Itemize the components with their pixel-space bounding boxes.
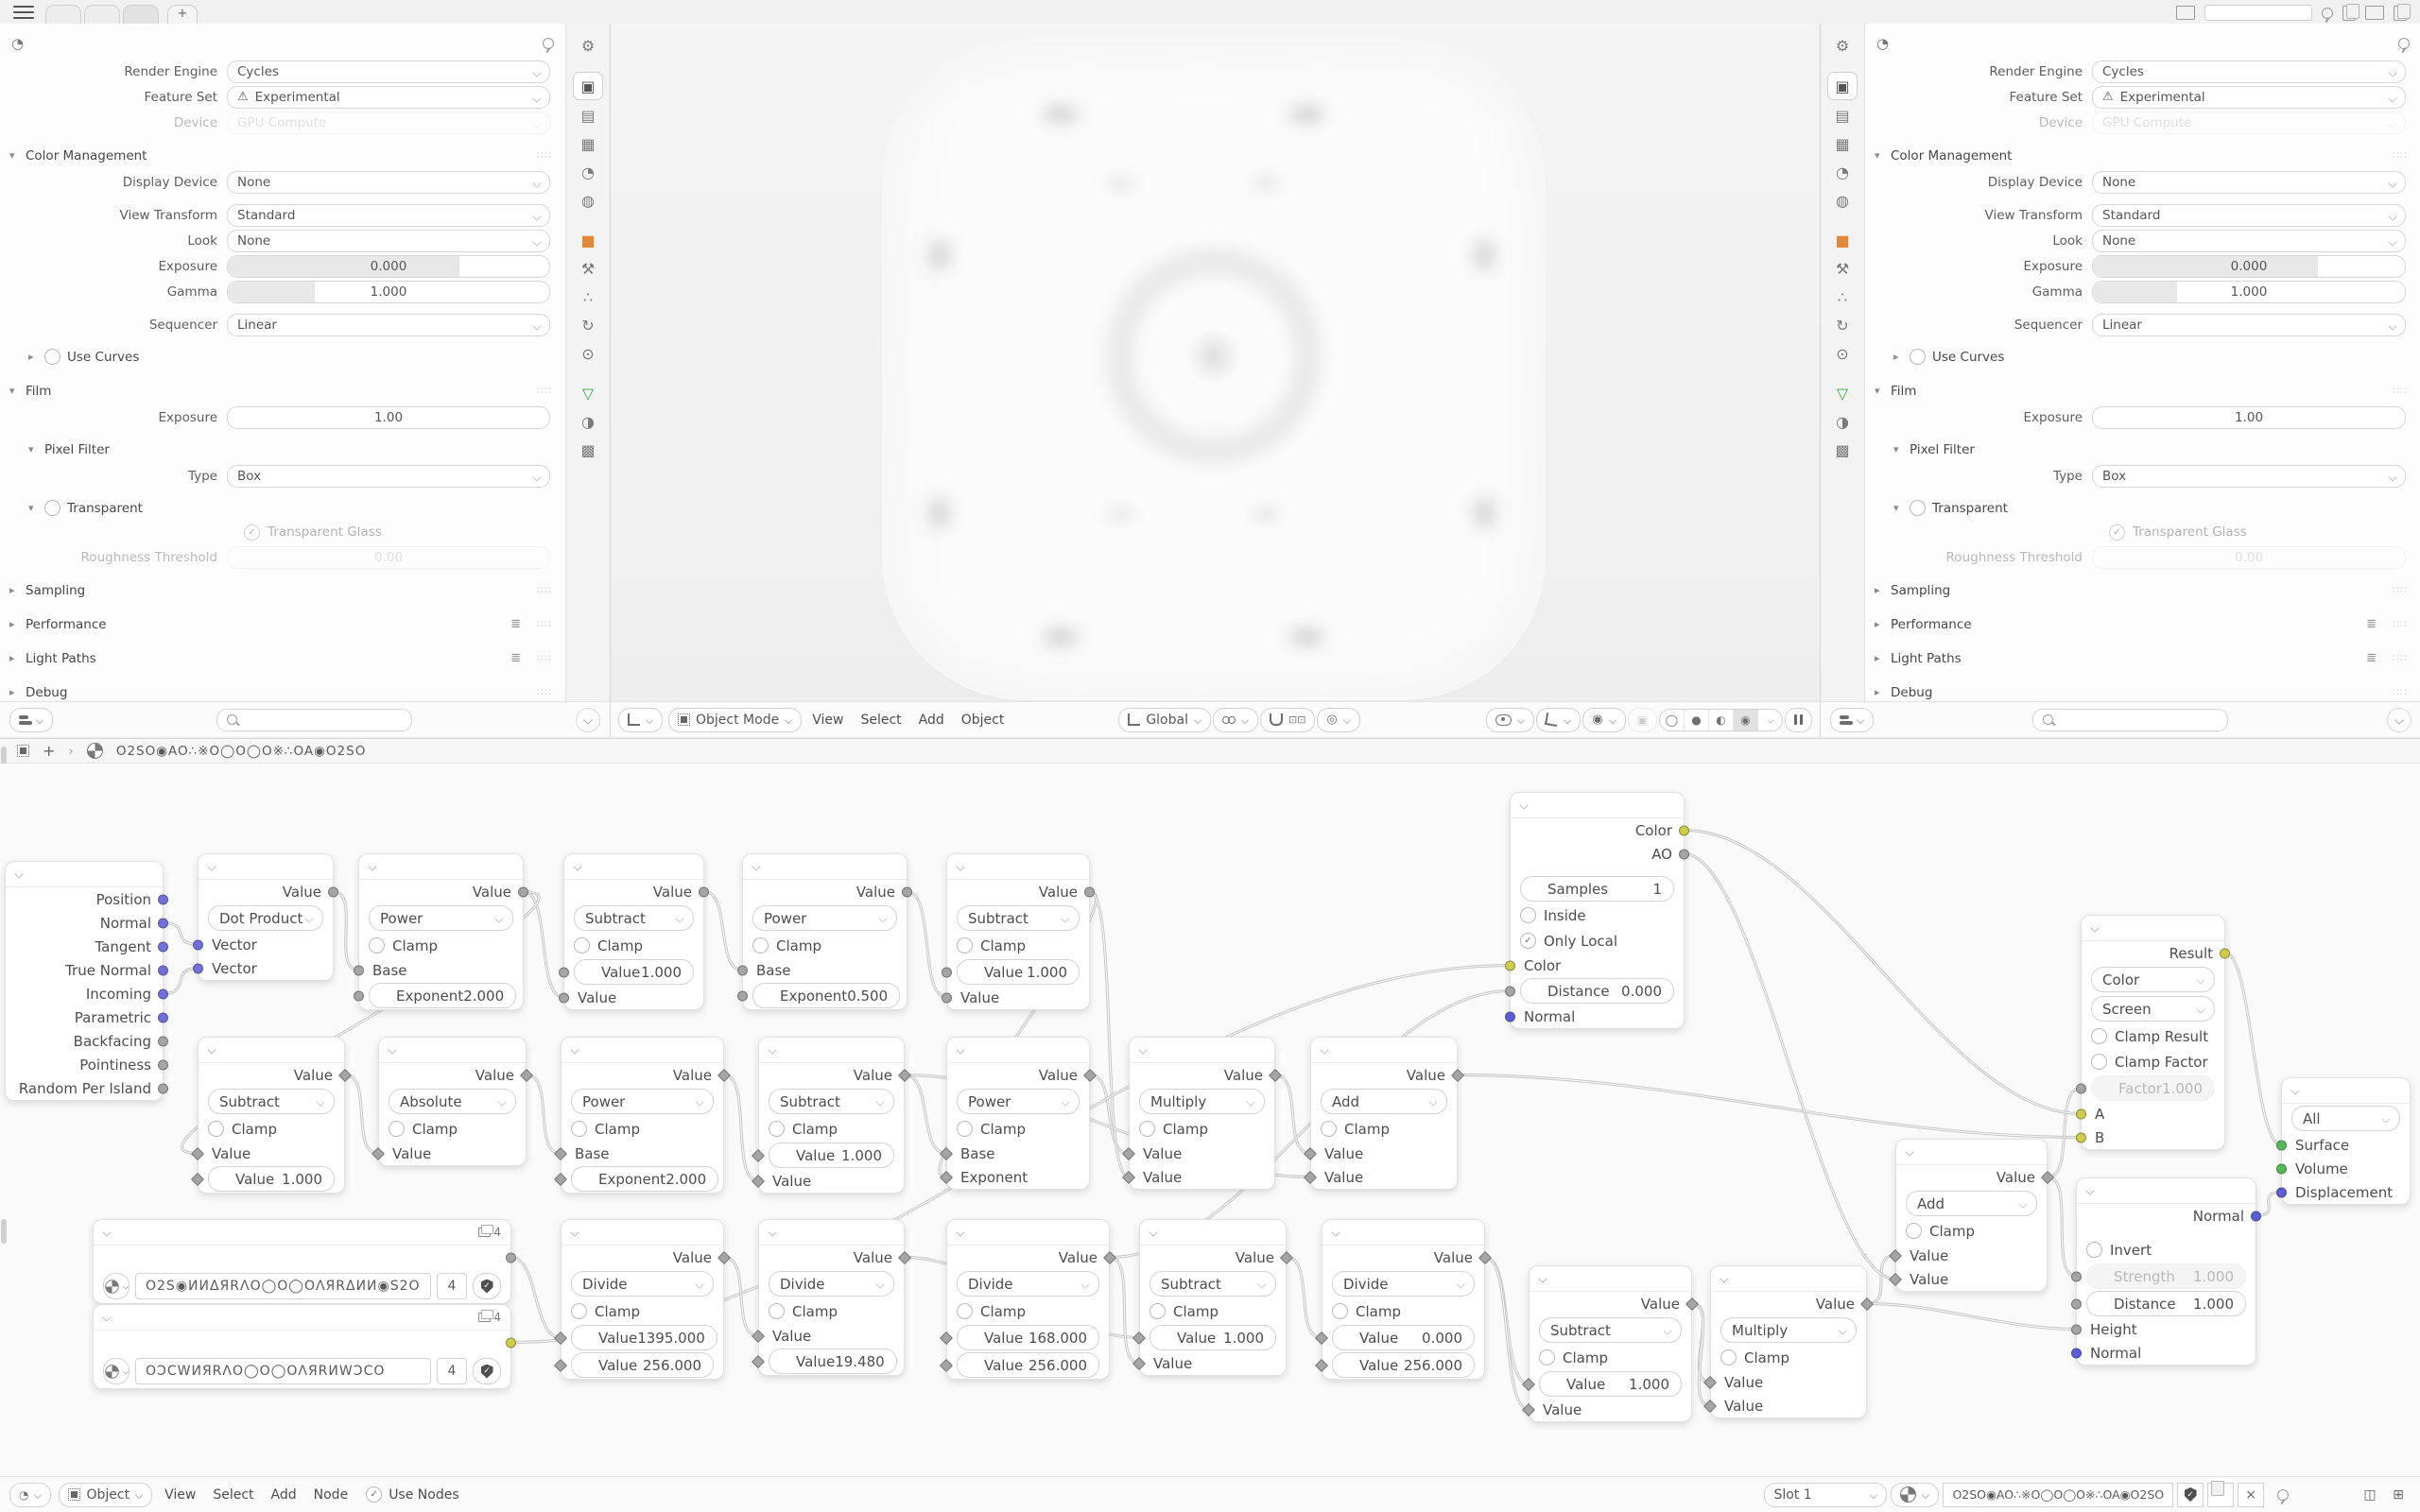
properties-search-input[interactable]: [2032, 709, 2228, 731]
socket[interactable]: [752, 1329, 765, 1342]
socket[interactable]: [354, 965, 364, 975]
select-type[interactable]: Box: [2092, 465, 2406, 488]
socket[interactable]: [193, 939, 203, 950]
tab-render-icon[interactable]: ▣: [573, 72, 603, 100]
math-subtract-node[interactable]: ValueSubtractClampValue1.000Value: [946, 853, 1090, 1010]
operation-dropdown[interactable]: Subtract: [574, 905, 694, 931]
socket[interactable]: [559, 967, 569, 977]
operation-dropdown[interactable]: Absolute: [389, 1089, 516, 1114]
properties-search-input[interactable]: [216, 709, 412, 731]
socket[interactable]: [158, 1012, 168, 1022]
value-field[interactable]: Value1395.000: [571, 1325, 717, 1350]
node-header[interactable]: [1530, 1266, 1691, 1292]
collapse-chevron-icon[interactable]: [1320, 1045, 1328, 1054]
checkbox[interactable]: [574, 937, 590, 954]
new-tab-button[interactable]: +: [167, 5, 198, 24]
tab-render-icon[interactable]: ▣: [1827, 72, 1858, 100]
socket[interactable]: [559, 992, 569, 1003]
select-display-device[interactable]: None: [2092, 171, 2406, 194]
tab-data-icon[interactable]: ▽: [1828, 380, 1857, 406]
socket[interactable]: [940, 1331, 953, 1344]
operation-dropdown[interactable]: Multiply: [1139, 1089, 1265, 1114]
socket[interactable]: [158, 1036, 168, 1046]
shader-node-canvas[interactable]: PositionNormalTangentTrue NormalIncoming…: [0, 764, 2420, 1476]
operation-dropdown[interactable]: Power: [957, 1089, 1080, 1114]
socket[interactable]: [1703, 1399, 1717, 1412]
checkbox[interactable]: [752, 937, 769, 954]
collapse-chevron-icon[interactable]: [102, 1228, 111, 1236]
socket[interactable]: [737, 965, 748, 975]
node-header[interactable]: [1130, 1038, 1274, 1063]
node-header[interactable]: [1711, 1266, 1866, 1292]
checkbox[interactable]: [1149, 1303, 1166, 1319]
collapse-chevron-icon[interactable]: [768, 1228, 776, 1236]
bump-node[interactable]: NormalInvertStrength1.000Distance1.000He…: [2076, 1177, 2256, 1366]
socket[interactable]: [2071, 1271, 2082, 1281]
tab-world-icon[interactable]: ◍: [574, 187, 602, 214]
math-subtract-node[interactable]: ValueSubtractClampValue1.000Value: [758, 1037, 905, 1194]
shading-wireframe-button[interactable]: ◯: [1660, 710, 1685, 730]
socket[interactable]: [506, 1252, 516, 1263]
node-header[interactable]: [1896, 1140, 2047, 1165]
collapse-panel-button[interactable]: [576, 708, 600, 732]
checkbox[interactable]: [1139, 1121, 1155, 1137]
display-cast-icon[interactable]: [2176, 6, 2195, 20]
operation-dropdown[interactable]: Power: [571, 1089, 714, 1114]
socket[interactable]: [1304, 1170, 1317, 1183]
scrollbar[interactable]: [1, 1219, 7, 1244]
subsection-pixel-filter[interactable]: ▾Pixel Filter: [1865, 437, 2420, 462]
field-roughness-threshold[interactable]: 0.00: [2092, 546, 2406, 569]
checkbox[interactable]: [957, 937, 973, 954]
node-header[interactable]: [379, 1038, 526, 1063]
checkbox[interactable]: [571, 1303, 587, 1319]
socket[interactable]: [2220, 948, 2230, 958]
window-tab[interactable]: [84, 5, 120, 24]
overlays-dropdown[interactable]: ◉: [1582, 708, 1625, 732]
menu-select[interactable]: Select: [852, 713, 909, 728]
operation-dropdown[interactable]: Divide: [769, 1271, 894, 1297]
collapse-chevron-icon[interactable]: [2290, 1086, 2299, 1094]
tab-output-icon[interactable]: ▤: [574, 102, 602, 129]
collapse-chevron-icon[interactable]: [1519, 800, 1528, 809]
subsection-transparent[interactable]: ▾Transparent: [1865, 495, 2420, 521]
section-light-paths[interactable]: ▸Light Paths≣∷∷: [0, 645, 565, 671]
checkbox[interactable]: [2091, 1028, 2107, 1044]
socket[interactable]: [1122, 1170, 1135, 1183]
section-checkbox[interactable]: [1910, 349, 1926, 365]
math-divide-node[interactable]: ValueDivideClampValueValue19.480: [758, 1219, 905, 1376]
value-field[interactable]: Value0.000: [1332, 1325, 1475, 1350]
select-device[interactable]: GPU Compute: [2092, 112, 2406, 134]
tab-texture-icon[interactable]: ▩: [574, 437, 602, 463]
socket[interactable]: [940, 1358, 953, 1371]
math-subtract-node[interactable]: ValueSubtractClampValue1.000Value: [1139, 1219, 1287, 1376]
collapse-panel-button[interactable]: [2387, 708, 2411, 732]
menu-view[interactable]: View: [156, 1487, 204, 1503]
checkbox[interactable]: [1520, 907, 1536, 923]
socket[interactable]: [158, 918, 168, 928]
node-header[interactable]: [1311, 1038, 1457, 1063]
value-field[interactable]: Value1.000: [1539, 1371, 1682, 1397]
value-field[interactable]: Value168.000: [957, 1325, 1099, 1350]
section-performance[interactable]: ▸Performance≣∷∷: [1865, 611, 2420, 637]
node-header[interactable]: [562, 1038, 723, 1063]
value-field[interactable]: Strength1.000: [2086, 1263, 2246, 1289]
image-name-field[interactable]: OƆCWИЯRΛO◯O◯OΛЯRИWƆCO: [135, 1358, 431, 1384]
socket[interactable]: [338, 1068, 352, 1081]
socket[interactable]: [1103, 1250, 1116, 1263]
node-header[interactable]: [562, 1220, 723, 1246]
socket[interactable]: [554, 1358, 567, 1371]
menu-view[interactable]: View: [804, 713, 852, 728]
checkbox[interactable]: [2086, 1242, 2102, 1258]
socket[interactable]: [158, 1059, 168, 1070]
window-tab[interactable]: [123, 5, 159, 24]
collapse-chevron-icon[interactable]: [388, 1045, 396, 1054]
collapse-chevron-icon[interactable]: [956, 862, 964, 870]
select-sequencer[interactable]: Linear: [2092, 314, 2406, 336]
titlebar-pin-icon[interactable]: [2322, 8, 2333, 19]
image-name-field[interactable]: O2S◉ИИΔЯRΛO◯O◯OΛЯRΔИИ◉S2O: [135, 1273, 431, 1299]
node-header[interactable]: [759, 1038, 904, 1063]
tab-object-icon[interactable]: ■: [1828, 227, 1857, 253]
section-film[interactable]: ▾Film∷∷: [1865, 378, 2420, 404]
socket[interactable]: [1451, 1068, 1464, 1081]
shading-rendered-button[interactable]: ◉: [1734, 710, 1758, 730]
collapse-chevron-icon[interactable]: [573, 862, 581, 870]
snap-target-dropdown[interactable]: [1213, 708, 1258, 732]
menu-select[interactable]: Select: [204, 1487, 262, 1503]
collapse-chevron-icon[interactable]: [768, 1045, 776, 1054]
operation-dropdown[interactable]: Subtract: [769, 1089, 894, 1114]
collapse-chevron-icon[interactable]: [102, 1313, 111, 1321]
select-look[interactable]: None: [2092, 230, 2406, 252]
socket[interactable]: [1505, 986, 1515, 996]
math-divide-node[interactable]: ValueDivideClampValue0.000Value256.000: [1322, 1219, 1485, 1380]
users-count-button[interactable]: 4: [437, 1273, 467, 1299]
mix-color-node[interactable]: ResultColorScreenClamp ResultClamp Facto…: [2081, 915, 2225, 1150]
tab-tool-icon[interactable]: ⚙: [1828, 32, 1857, 59]
node-header[interactable]: [947, 1038, 1089, 1063]
math-add-node[interactable]: ValueAddClampValueValue: [1895, 1139, 2048, 1292]
use-nodes-checkbox[interactable]: ✓: [366, 1486, 382, 1503]
socket[interactable]: [2251, 1211, 2261, 1221]
tab-physics-icon[interactable]: ↻: [574, 312, 602, 338]
collapse-chevron-icon[interactable]: [14, 869, 23, 878]
socket[interactable]: [2076, 1132, 2086, 1143]
socket[interactable]: [737, 990, 748, 1001]
menu-node[interactable]: Node: [305, 1487, 357, 1503]
tab-tool-icon[interactable]: ⚙: [574, 32, 602, 59]
tab-scene-icon[interactable]: ◔: [574, 159, 602, 185]
tab-modifiers-icon[interactable]: ⚒: [1828, 255, 1857, 282]
tab-data-icon[interactable]: ▽: [574, 380, 602, 406]
gizmos-dropdown[interactable]: [1536, 708, 1581, 732]
socket[interactable]: [1084, 886, 1095, 897]
collapse-chevron-icon[interactable]: [752, 862, 760, 870]
list-icon[interactable]: ≣: [510, 651, 521, 665]
operation-dropdown[interactable]: Divide: [571, 1271, 714, 1297]
checkbox[interactable]: [1539, 1349, 1555, 1366]
math-absolute-node[interactable]: ValueAbsoluteClampValue: [378, 1037, 527, 1166]
checkbox[interactable]: [769, 1303, 785, 1319]
shading-options-chevron[interactable]: [1758, 710, 1782, 730]
node-header[interactable]: [564, 854, 703, 880]
socket[interactable]: [1522, 1377, 1535, 1390]
socket[interactable]: [2076, 1083, 2086, 1093]
math-subtract-node[interactable]: ValueSubtractClampValue1.000Value: [1529, 1265, 1692, 1422]
hamburger-menu-icon[interactable]: [13, 6, 34, 19]
socket[interactable]: [354, 990, 364, 1001]
node-header[interactable]: [1322, 1220, 1484, 1246]
socket[interactable]: [518, 886, 528, 897]
socket[interactable]: [1505, 1011, 1515, 1022]
socket[interactable]: [2276, 1187, 2287, 1197]
socket[interactable]: [1132, 1331, 1146, 1344]
list-icon[interactable]: ≣: [2366, 617, 2377, 631]
subsection-transparent[interactable]: ▾Transparent: [0, 495, 565, 521]
operation-dropdown[interactable]: Divide: [957, 1271, 1099, 1297]
editor-type-button[interactable]: [9, 708, 53, 732]
socket[interactable]: [1132, 1356, 1146, 1369]
socket[interactable]: [1889, 1272, 1902, 1285]
checkbox[interactable]: [571, 1121, 587, 1137]
editor-type-button[interactable]: [1830, 708, 1874, 732]
collapse-chevron-icon[interactable]: [1538, 1274, 1547, 1282]
node-header[interactable]: [1140, 1220, 1286, 1246]
select-feature-set[interactable]: ⚠Experimental: [2092, 86, 2406, 109]
properties-pin-icon[interactable]: [2398, 38, 2410, 49]
field-gamma[interactable]: 1.000: [2092, 281, 2406, 303]
socket[interactable]: [1889, 1248, 1902, 1262]
section-checkbox[interactable]: [1910, 500, 1926, 516]
socket[interactable]: [520, 1068, 533, 1081]
tab-view-layer-icon[interactable]: ▦: [574, 130, 602, 157]
operation-dropdown[interactable]: Subtract: [1539, 1317, 1682, 1343]
checkbox[interactable]: [208, 1121, 224, 1137]
material-slot-dropdown[interactable]: Slot 1: [1764, 1483, 1887, 1507]
window-tab[interactable]: [45, 5, 81, 24]
field-exposure[interactable]: 1.00: [227, 406, 550, 429]
socket[interactable]: [1315, 1331, 1328, 1344]
subsection-use-curves[interactable]: ▸Use Curves: [1865, 344, 2420, 369]
socket[interactable]: [193, 963, 203, 973]
value-field[interactable]: Distance0.000: [1520, 978, 1674, 1004]
value-field[interactable]: Value1.000: [1149, 1325, 1276, 1350]
material-output-node[interactable]: AllSurfaceVolumeDisplacement: [2281, 1077, 2411, 1205]
operation-dropdown[interactable]: Color: [2091, 967, 2215, 992]
collapse-chevron-icon[interactable]: [1331, 1228, 1340, 1236]
menu-add[interactable]: Add: [910, 713, 953, 728]
socket[interactable]: [158, 894, 168, 904]
fake-user-shield-button[interactable]: ✓: [473, 1358, 501, 1384]
tab-physics-icon[interactable]: ↻: [1828, 312, 1857, 338]
socket[interactable]: [1522, 1402, 1535, 1416]
field-exposure[interactable]: 0.000: [227, 255, 550, 278]
section-light-paths[interactable]: ▸Light Paths≣∷∷: [1865, 645, 2420, 671]
socket[interactable]: [2071, 1348, 2082, 1358]
socket[interactable]: [898, 1068, 911, 1081]
mode-dropdown[interactable]: Object Mode: [668, 708, 802, 732]
tab-material-icon[interactable]: ◑: [574, 408, 602, 435]
socket[interactable]: [2076, 1108, 2086, 1119]
operation-dropdown[interactable]: Add: [1321, 1089, 1447, 1114]
unlink-material-button[interactable]: ×: [2238, 1483, 2264, 1507]
collapse-chevron-icon[interactable]: [956, 1045, 964, 1054]
socket[interactable]: [898, 1250, 911, 1263]
collapse-chevron-icon[interactable]: [207, 862, 216, 870]
socket[interactable]: [328, 886, 338, 897]
socket[interactable]: [158, 941, 168, 952]
shading-material-button[interactable]: ◐: [1709, 710, 1734, 730]
node-header[interactable]: [359, 854, 523, 880]
section-checkbox[interactable]: [44, 500, 60, 516]
value-field[interactable]: Distance1.000: [2086, 1291, 2246, 1316]
socket[interactable]: [752, 1354, 765, 1367]
node-header[interactable]: [199, 854, 333, 880]
shading-solid-button[interactable]: ●: [1685, 710, 1709, 730]
select-sequencer[interactable]: Linear: [227, 314, 550, 336]
tab-particles-icon[interactable]: ∴: [1828, 283, 1857, 310]
checkbox[interactable]: [1332, 1303, 1348, 1319]
socket[interactable]: [699, 886, 709, 897]
tab-scene-icon[interactable]: ◔: [1828, 159, 1857, 185]
socket[interactable]: [2276, 1163, 2287, 1174]
socket[interactable]: [554, 1331, 567, 1344]
operation-dropdown[interactable]: Power: [369, 905, 513, 931]
list-icon[interactable]: ≣: [510, 617, 521, 631]
socket[interactable]: [717, 1068, 731, 1081]
math-subtract-node[interactable]: ValueSubtractClampValue1.000Value: [563, 853, 704, 1010]
material-name-field[interactable]: O2SO◉AO∴※O◯O◯O※∴OA◉O2SO: [1943, 1483, 2173, 1507]
socket[interactable]: [2276, 1140, 2287, 1150]
image-texture-node[interactable]: 4O2S◉ИИΔЯRΛO◯O◯OΛЯRΔИИ◉S2O4✓: [93, 1219, 511, 1304]
math-power-node[interactable]: ValuePowerClampBaseExponent: [946, 1037, 1090, 1190]
checkbox[interactable]: [1321, 1121, 1337, 1137]
value-field[interactable]: Value19.480: [769, 1349, 897, 1374]
collapse-chevron-icon[interactable]: [1138, 1045, 1147, 1054]
section-debug[interactable]: ▸Debug∷∷: [0, 679, 565, 701]
collapse-chevron-icon[interactable]: [956, 1228, 964, 1236]
socket[interactable]: [752, 1174, 765, 1187]
checkbox[interactable]: [957, 1121, 973, 1137]
collapse-chevron-icon[interactable]: [570, 1228, 579, 1236]
collapse-chevron-icon[interactable]: [207, 1045, 216, 1054]
section-color-management[interactable]: ▾Color Management∷∷: [1865, 143, 2420, 168]
collapse-chevron-icon[interactable]: [1720, 1274, 1728, 1282]
node-header[interactable]: [199, 1038, 344, 1063]
socket[interactable]: [2041, 1170, 2054, 1183]
value-field[interactable]: Factor1.000: [2091, 1075, 2215, 1101]
proportional-editing-dropdown[interactable]: ◎: [1317, 708, 1359, 732]
node-editor-type-button[interactable]: ◔: [9, 1483, 51, 1507]
node-header[interactable]: [743, 854, 907, 880]
socket[interactable]: [940, 1146, 953, 1160]
node-header[interactable]: [1511, 793, 1684, 818]
section-color-management[interactable]: ▾Color Management∷∷: [0, 143, 565, 168]
socket[interactable]: [1122, 1146, 1135, 1160]
socket[interactable]: [191, 1146, 204, 1160]
socket[interactable]: [1280, 1250, 1293, 1263]
socket[interactable]: [1269, 1068, 1282, 1081]
checkbox[interactable]: ✓: [244, 524, 260, 541]
section-performance[interactable]: ▸Performance≣∷∷: [0, 611, 565, 637]
select-view-transform[interactable]: Standard: [2092, 204, 2406, 227]
menu-object[interactable]: Object: [953, 713, 1013, 728]
tab-view-layer-icon[interactable]: ▦: [1828, 130, 1857, 157]
browse-material-button[interactable]: [1891, 1483, 1939, 1507]
math-power-node[interactable]: ValuePowerClampBaseExponent2.000: [358, 853, 524, 1010]
checkbox[interactable]: ✓: [1520, 933, 1536, 949]
browse-image-button[interactable]: [103, 1358, 130, 1384]
operation-dropdown[interactable]: Dot Product: [208, 905, 323, 931]
browse-image-button[interactable]: [103, 1273, 130, 1299]
fake-user-shield-button[interactable]: ✓: [473, 1273, 501, 1299]
socket[interactable]: [158, 1083, 168, 1093]
value-field[interactable]: Value1.000: [574, 959, 694, 985]
collapse-chevron-icon[interactable]: [1149, 1228, 1157, 1236]
math-subtract-node[interactable]: ValueSubtractClampValueValue1.000: [198, 1037, 345, 1194]
menu-add[interactable]: Add: [263, 1487, 305, 1503]
field-exposure[interactable]: 0.000: [2092, 255, 2406, 278]
value-field[interactable]: Value256.000: [571, 1352, 714, 1378]
operation-dropdown[interactable]: Power: [752, 905, 897, 931]
operation-dropdown[interactable]: Add: [1906, 1191, 2037, 1216]
collapse-chevron-icon[interactable]: [2085, 1186, 2094, 1194]
socket[interactable]: [158, 965, 168, 975]
node-header[interactable]: 4: [94, 1220, 510, 1246]
select-type[interactable]: Box: [227, 465, 550, 488]
tab-constraints-icon[interactable]: ⊙: [1828, 340, 1857, 367]
operation-dropdown[interactable]: Subtract: [1149, 1271, 1276, 1297]
operation-dropdown[interactable]: Subtract: [208, 1089, 335, 1114]
select-render-engine[interactable]: Cycles: [227, 60, 550, 83]
socket[interactable]: [902, 886, 912, 897]
snap-magnet-toggle[interactable]: ⊡⊡: [1260, 708, 1315, 732]
shader-type-dropdown[interactable]: Object: [59, 1483, 152, 1507]
node-header[interactable]: [759, 1220, 904, 1246]
image-texture-node[interactable]: 4OƆCWИЯRΛO◯O◯OΛЯRИWƆCO4✓: [93, 1304, 511, 1389]
operation-dropdown[interactable]: Screen: [2091, 996, 2215, 1022]
value-field[interactable]: Exponent2.000: [571, 1166, 718, 1192]
node-header[interactable]: [947, 1220, 1109, 1246]
socket[interactable]: [554, 1146, 567, 1160]
socket[interactable]: [2071, 1298, 2082, 1309]
node-header[interactable]: 4: [94, 1305, 510, 1331]
socket[interactable]: [1315, 1358, 1328, 1371]
collapse-chevron-icon[interactable]: [368, 862, 376, 870]
socket[interactable]: [158, 988, 168, 999]
object-visibility-dropdown[interactable]: [1486, 708, 1534, 732]
list-icon[interactable]: ≣: [2366, 651, 2377, 665]
field-gamma[interactable]: 1.000: [227, 281, 550, 303]
screen-share-icon[interactable]: [2365, 6, 2384, 20]
field-exposure[interactable]: 1.00: [2092, 406, 2406, 429]
section-debug[interactable]: ▸Debug∷∷: [1865, 679, 2420, 701]
socket[interactable]: [942, 992, 952, 1003]
ambient-occlusion-node[interactable]: ColorAOSamples1Inside✓Only LocalColorDis…: [1510, 792, 1685, 1029]
checkbox[interactable]: [389, 1121, 405, 1137]
socket[interactable]: [554, 1172, 567, 1185]
math-divide-node[interactable]: ValueDivideClampValue168.000Value256.000: [946, 1219, 1110, 1380]
math-multiply-node[interactable]: ValueMultiplyClampValueValue: [1710, 1265, 1867, 1418]
select-feature-set[interactable]: ⚠Experimental: [227, 86, 550, 109]
new-material-button[interactable]: [2207, 1483, 2234, 1507]
node-header[interactable]: [6, 862, 163, 887]
collapse-chevron-icon[interactable]: [2090, 923, 2099, 932]
editor-corner-icon[interactable]: ◫: [2358, 1484, 2382, 1506]
